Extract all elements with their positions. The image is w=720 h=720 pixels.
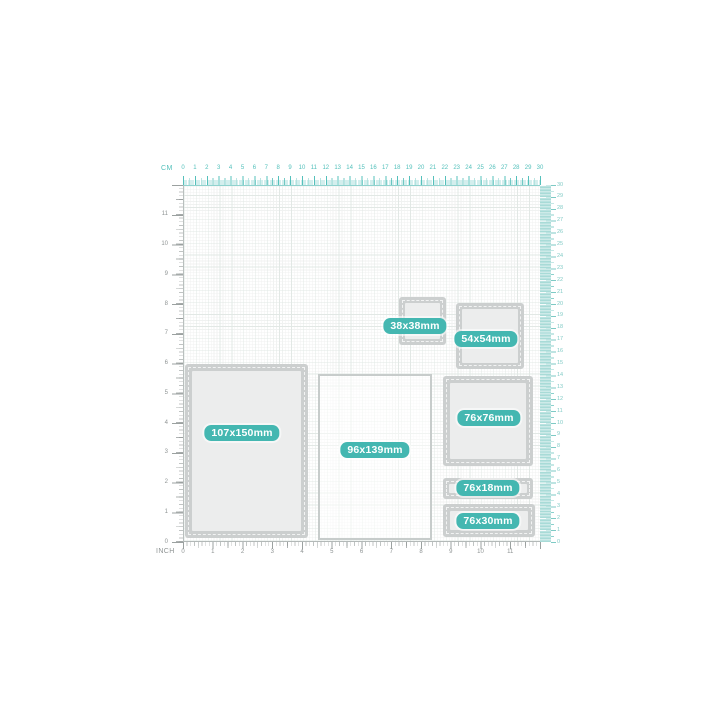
cm-tick-label: 29	[522, 165, 534, 171]
cm-tick-label: 2	[201, 165, 213, 171]
cm-tick-label: 4	[225, 165, 237, 171]
cm-right-tick-label: 20	[557, 301, 563, 307]
inch-bottom-tick-label: 9	[444, 549, 458, 555]
cm-tick-label: 28	[510, 165, 522, 171]
cm-right-tick-label: 21	[557, 289, 563, 295]
inch-bottom-tick-label: 5	[325, 549, 339, 555]
inch-bottom-tick-label: 6	[355, 549, 369, 555]
cm-right-tick-label: 24	[557, 253, 563, 259]
die-38x38-size-badge: 38x38mm	[383, 318, 446, 334]
die-107x150-size-badge: 107x150mm	[204, 425, 279, 441]
cm-ruler-major-ticks	[183, 176, 542, 185]
inch-left-tick-label: 3	[156, 449, 168, 455]
cm-ruler-label: CM	[161, 165, 173, 172]
cm-tick-label: 9	[284, 165, 296, 171]
cm-tick-label: 0	[177, 165, 189, 171]
inch-left-tick-label: 2	[156, 479, 168, 485]
inch-bottom-tick-label: 0	[176, 549, 190, 555]
cm-tick-label: 3	[213, 165, 225, 171]
cm-right-tick-label: 2	[557, 515, 560, 521]
inch-left-tick-label: 9	[156, 271, 168, 277]
cm-tick-label: 12	[320, 165, 332, 171]
cm-tick-label: 27	[498, 165, 510, 171]
cm-right-tick-label: 10	[557, 420, 563, 426]
cm-tick-label: 15	[356, 165, 368, 171]
cm-tick-label: 26	[486, 165, 498, 171]
cm-tick-label: 14	[344, 165, 356, 171]
cm-tick-label: 6	[248, 165, 260, 171]
cm-right-tick-label: 14	[557, 372, 563, 378]
die-96x139-size-badge: 96x139mm	[340, 442, 409, 458]
cm-right-tick-label: 13	[557, 384, 563, 390]
cm-right-tick-label: 22	[557, 277, 563, 283]
cm-right-tick-label: 17	[557, 336, 563, 342]
cm-right-strip-ticks	[540, 185, 546, 542]
cm-tick-label: 25	[475, 165, 487, 171]
die-76x18-size-badge: 76x18mm	[456, 480, 519, 496]
cm-right-major-ticks	[551, 185, 556, 543]
inch-left-tick-label: 7	[156, 330, 168, 336]
die-107x150	[185, 364, 308, 538]
cm-right-tick-label: 26	[557, 229, 563, 235]
inch-left-tick-label: 10	[156, 241, 168, 247]
cm-tick-label: 23	[451, 165, 463, 171]
inch-left-tick-label: 8	[156, 301, 168, 307]
die-76x76-size-badge: 76x76mm	[457, 410, 520, 426]
cm-tick-label: 21	[427, 165, 439, 171]
inch-ruler-label: INCH	[156, 548, 175, 555]
cm-right-tick-label: 3	[557, 503, 560, 509]
cm-right-tick-label: 7	[557, 455, 560, 461]
cm-right-tick-label: 12	[557, 396, 563, 402]
cm-right-tick-label: 0	[557, 539, 560, 545]
cm-right-tick-label: 16	[557, 348, 563, 354]
cm-tick-label: 17	[379, 165, 391, 171]
cm-right-tick-label: 28	[557, 205, 563, 211]
inch-left-tick-label: 0	[156, 539, 168, 545]
inch-bottom-tick-label: 3	[265, 549, 279, 555]
inch-bottom-tick-label: 4	[295, 549, 309, 555]
cm-right-tick-label: 9	[557, 431, 560, 437]
cm-tick-label: 30	[534, 165, 546, 171]
inch-left-tick-label: 1	[156, 509, 168, 515]
inch-left-tick-label: 5	[156, 390, 168, 396]
cm-tick-label: 11	[308, 165, 320, 171]
cm-right-tick-label: 11	[557, 408, 563, 414]
cm-right-tick-label: 8	[557, 443, 560, 449]
inch-bottom-tick-label: 2	[236, 549, 250, 555]
cm-tick-label: 1	[189, 165, 201, 171]
die-107x150-opening	[192, 371, 301, 531]
cm-right-tick-label: 4	[557, 491, 560, 497]
cm-right-tick-label: 18	[557, 324, 563, 330]
cm-right-tick-label: 1	[557, 527, 560, 533]
cm-tick-label: 7	[260, 165, 272, 171]
cm-right-tick-label: 15	[557, 360, 563, 366]
die-76x30-size-badge: 76x30mm	[456, 513, 519, 529]
inch-bottom-tick-label: 11	[503, 549, 517, 555]
cm-right-tick-label: 5	[557, 479, 560, 485]
cm-tick-label: 13	[332, 165, 344, 171]
cm-tick-label: 18	[391, 165, 403, 171]
cm-tick-label: 16	[367, 165, 379, 171]
cm-right-tick-label: 6	[557, 467, 560, 473]
cm-tick-label: 10	[296, 165, 308, 171]
cm-right-tick-label: 19	[557, 312, 563, 318]
cm-tick-label: 19	[403, 165, 415, 171]
cm-right-tick-label: 23	[557, 265, 563, 271]
die-size-guide: CM 0123456789101112131415161718192021222…	[0, 0, 720, 720]
inch-bottom-tick-label: 8	[414, 549, 428, 555]
die-54x54-size-badge: 54x54mm	[454, 331, 517, 347]
cm-right-tick-label: 27	[557, 217, 563, 223]
inch-bottom-tick-label: 7	[384, 549, 398, 555]
inch-left-tick-label: 4	[156, 420, 168, 426]
inch-left-major-ticks	[172, 185, 183, 543]
cm-right-tick-label: 25	[557, 241, 563, 247]
cm-tick-label: 22	[439, 165, 451, 171]
inch-bottom-tick-label: 10	[474, 549, 488, 555]
cm-tick-label: 8	[272, 165, 284, 171]
inch-left-tick-label: 11	[156, 211, 168, 217]
inch-left-tick-label: 6	[156, 360, 168, 366]
cm-tick-label: 24	[463, 165, 475, 171]
cm-tick-label: 5	[237, 165, 249, 171]
cm-right-tick-label: 29	[557, 193, 563, 199]
cm-right-tick-label: 30	[557, 182, 563, 188]
cm-tick-label: 20	[415, 165, 427, 171]
inch-bottom-tick-label: 1	[206, 549, 220, 555]
